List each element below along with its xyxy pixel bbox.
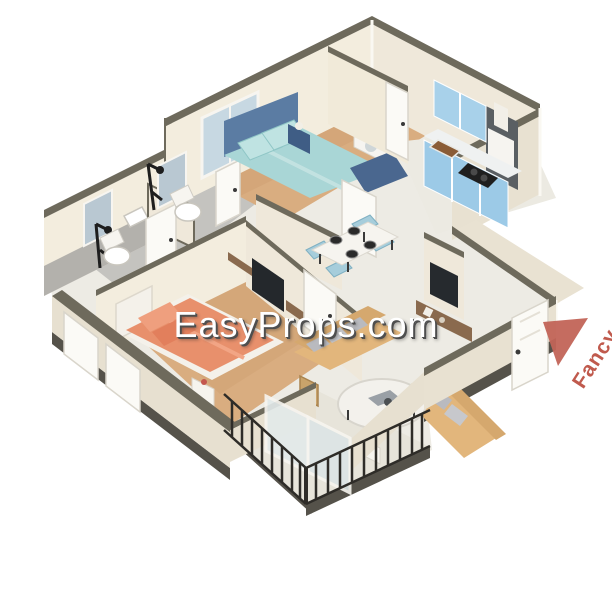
door-handle (233, 188, 237, 192)
place-setting (364, 241, 376, 249)
door-handle (169, 238, 173, 242)
bathroom-door (216, 160, 240, 226)
vase (201, 379, 207, 385)
toilet-bowl (104, 247, 130, 265)
place-setting (346, 250, 358, 258)
toilet-bowl (175, 203, 201, 221)
floorplan-render: EasyProps.com Fancy (0, 0, 612, 612)
burner (471, 169, 478, 176)
utility-door (386, 82, 408, 160)
console-deco-dot (439, 317, 445, 323)
door-handle (328, 314, 332, 318)
place-setting (330, 236, 342, 244)
burner (481, 175, 488, 182)
shower-head (156, 166, 164, 174)
lamp (295, 122, 303, 130)
door-handle (516, 350, 521, 355)
place-setting (348, 227, 360, 235)
floorplan-scene (0, 0, 612, 612)
door-handle (401, 122, 405, 126)
